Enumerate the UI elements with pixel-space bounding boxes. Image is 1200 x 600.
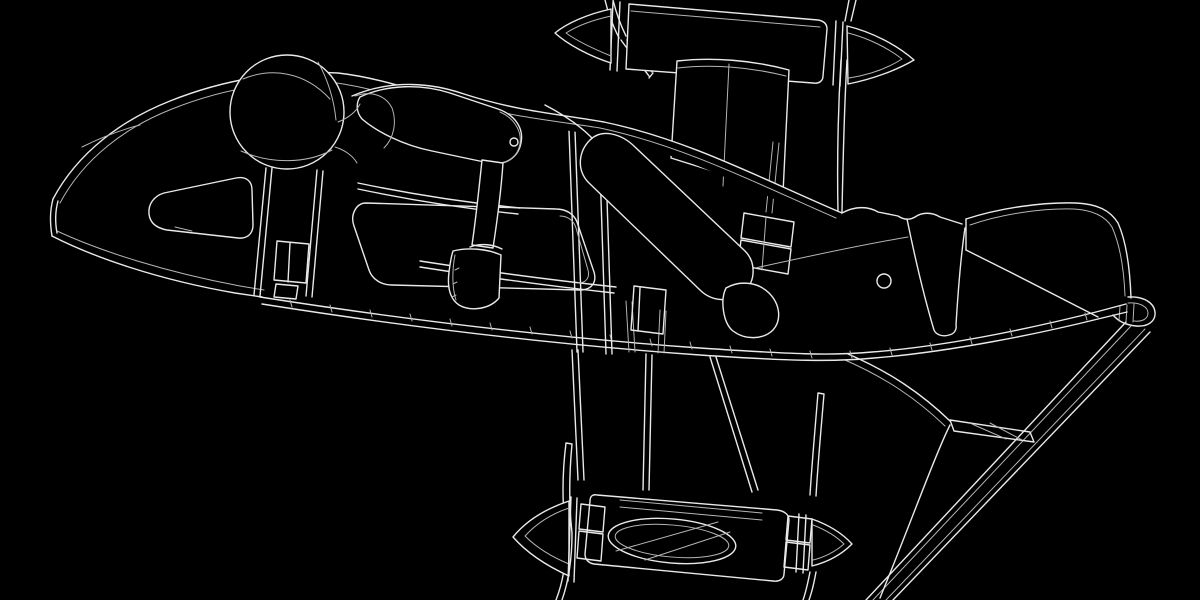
trailing-edge-top (260, 297, 1126, 354)
upper-tailcone-right (847, 26, 914, 84)
upper-spinner-left (555, 9, 611, 63)
right-wing-panel (966, 203, 1155, 326)
pilot-body (230, 55, 965, 338)
helmet-rail-2 (306, 170, 323, 297)
near-upper-arm (357, 87, 521, 164)
wing-strut-3 (710, 357, 758, 492)
brace-rear-inner (886, 329, 1145, 600)
frame-post-3 (626, 301, 635, 352)
wing-leading-edge-inner (970, 209, 1125, 296)
helmet-rail-box-1 (274, 241, 309, 283)
wing-strut-1 (572, 350, 584, 480)
brace-front-inner (873, 326, 1131, 600)
lower-nacelle (513, 350, 852, 600)
helmet-rail-1 (254, 168, 272, 296)
brace-connector (950, 420, 1034, 442)
helmet (230, 55, 344, 169)
knee-joint (877, 274, 891, 288)
far-fist (723, 283, 779, 337)
upper-rear-hub-bands (833, 21, 843, 86)
helmet-rail-box-2 (274, 284, 298, 299)
root-fairing-descent (880, 425, 950, 598)
lower-spinner-left (513, 501, 569, 576)
hip-fill (840, 208, 962, 240)
frame-box-mid (631, 286, 666, 334)
wingtip-braces (845, 322, 1150, 600)
line-art-canvas: Wireframe line-art: pilot lying prone on… (0, 0, 1200, 600)
nose-window-highlight (175, 227, 192, 231)
nose-window (149, 178, 253, 239)
trailing-edge-bottom (262, 304, 1127, 360)
brace-front (866, 322, 1126, 600)
wing-leading-edge (966, 203, 1131, 298)
lower-rear-prop-blade-down (803, 572, 816, 600)
wireframe-illustration: Wireframe line-art: pilot lying prone on… (0, 0, 1200, 600)
root-fairing-curve (848, 354, 950, 421)
upper-rear-prop-blade-down (838, 60, 847, 215)
trailing-edge-ticks (290, 300, 1087, 358)
brace-rear (893, 332, 1150, 600)
near-forearm (472, 160, 503, 248)
nose-bottom-edge-inner (57, 231, 264, 290)
wingtip-curl-inner (1128, 303, 1148, 321)
main-wing (260, 297, 1127, 360)
nose-left-cap (51, 199, 58, 236)
wing-panel-lower-edge (966, 250, 1098, 317)
lower-rear-prop-blade-up (810, 393, 824, 496)
wing-strut-2 (643, 354, 652, 490)
upper-rear-prop-blade-up (845, 0, 856, 21)
root-fairing-curve-inner (845, 360, 945, 426)
